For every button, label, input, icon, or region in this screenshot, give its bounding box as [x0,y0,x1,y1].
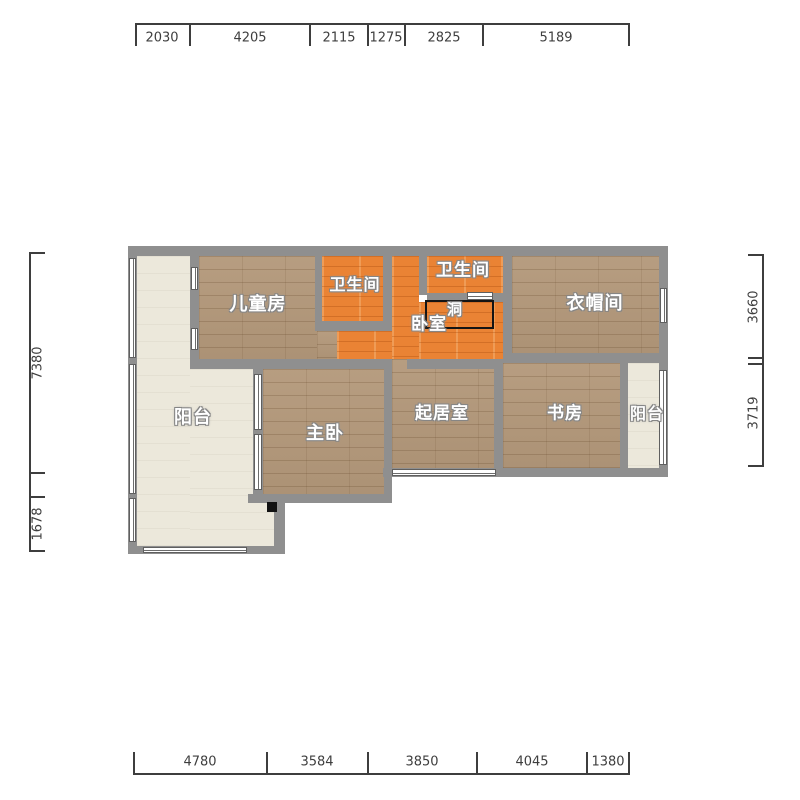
dim-label-top: 4205 [233,31,266,46]
dim-tick [748,357,764,359]
wall-mid-horizontal [503,353,660,363]
window-cloakroom-right [660,288,667,323]
wall-children-bathroom [315,256,322,321]
window-left-wall [129,258,136,358]
dim-tick [133,752,135,775]
window-balcony-bottom [143,547,247,553]
room-label-children: 儿童房 [230,290,287,316]
dim-tick [135,23,137,46]
dim-tick [404,23,406,46]
dim-tick [628,23,630,46]
balcony-left-floor [190,369,253,495]
room-label-cloakroom: 衣帽间 [567,289,624,315]
room-label-balcony-right: 阳台 [630,400,664,424]
dim-label-bottom: 3850 [405,755,438,770]
wall-top [128,246,668,256]
wall-bathroom-left-right [383,256,392,331]
room-label-bedroom: 卧室 [411,310,447,335]
wall-master-living [384,369,392,503]
room-label-bathroom-left: 卫生间 [329,271,380,295]
dim-label-right: 3660 [747,290,762,323]
dim-label-bottom: 1380 [591,755,624,770]
dim-label-bottom: 4045 [515,755,548,770]
dim-tick [748,363,764,365]
dim-line-top [135,23,630,25]
dim-tick [189,23,191,46]
wall-bathroom-right-left [419,256,427,295]
dim-tick [29,252,45,254]
dim-tick [628,752,630,775]
dim-line-bottom [133,773,630,775]
dim-label-left: 1678 [31,507,46,540]
wall-mid-horizontal [407,359,503,369]
window-master-balcony [254,374,262,430]
bedroom-floor [392,256,419,359]
wall-cloakroom-left [503,256,512,353]
dim-label-left: 7380 [31,346,46,379]
dim-label-top: 2115 [322,31,355,46]
dim-label-top: 2030 [145,31,178,46]
room-label-hole: 洞 [447,299,463,320]
dim-label-bottom: 3584 [300,755,333,770]
room-label-master: 主卧 [306,419,344,445]
dim-tick [367,752,369,775]
dim-line-right [762,255,764,467]
dim-tick [266,752,268,775]
dim-tick [748,254,764,256]
dim-tick [586,752,588,775]
bedroom-floor [337,331,392,359]
window-children-balcony [191,328,198,350]
window-left-wall [129,498,136,542]
dim-tick [309,23,311,46]
wall-living-study [494,359,503,468]
dim-tick [482,23,484,46]
wall-bathroom-left-bottom [315,321,390,331]
room-label-study: 书房 [547,399,583,424]
dim-tick [748,465,764,467]
wall-study-balcony [620,363,628,468]
dim-label-top: 1275 [369,31,402,46]
window-master-balcony [254,434,262,490]
dim-label-right: 3719 [747,396,762,429]
window-living-bottom [392,469,496,476]
dim-tick [29,472,45,474]
window-pass-through [467,292,493,300]
dim-label-top: 5189 [539,31,572,46]
room-label-balcony-left: 阳台 [174,403,212,429]
balcony-left-floor [137,256,190,546]
dim-tick [29,496,45,498]
wall-mid-horizontal [190,359,392,369]
room-label-bathroom-right: 卫生间 [436,256,490,281]
dim-label-top: 2825 [427,31,460,46]
children-room-floor [317,331,337,359]
door-marker [267,502,277,512]
window-left-wall [129,364,136,494]
floor-plan-canvas: 儿童房 卫生间 卫生间 卧室 洞 衣帽间 阳台 主卧 起居室 书房 阳台 203… [0,0,800,800]
dim-tick [476,752,478,775]
room-label-living: 起居室 [415,399,469,424]
dim-label-bottom: 4780 [183,755,216,770]
window-children-balcony [191,267,198,290]
dim-tick [29,550,45,552]
